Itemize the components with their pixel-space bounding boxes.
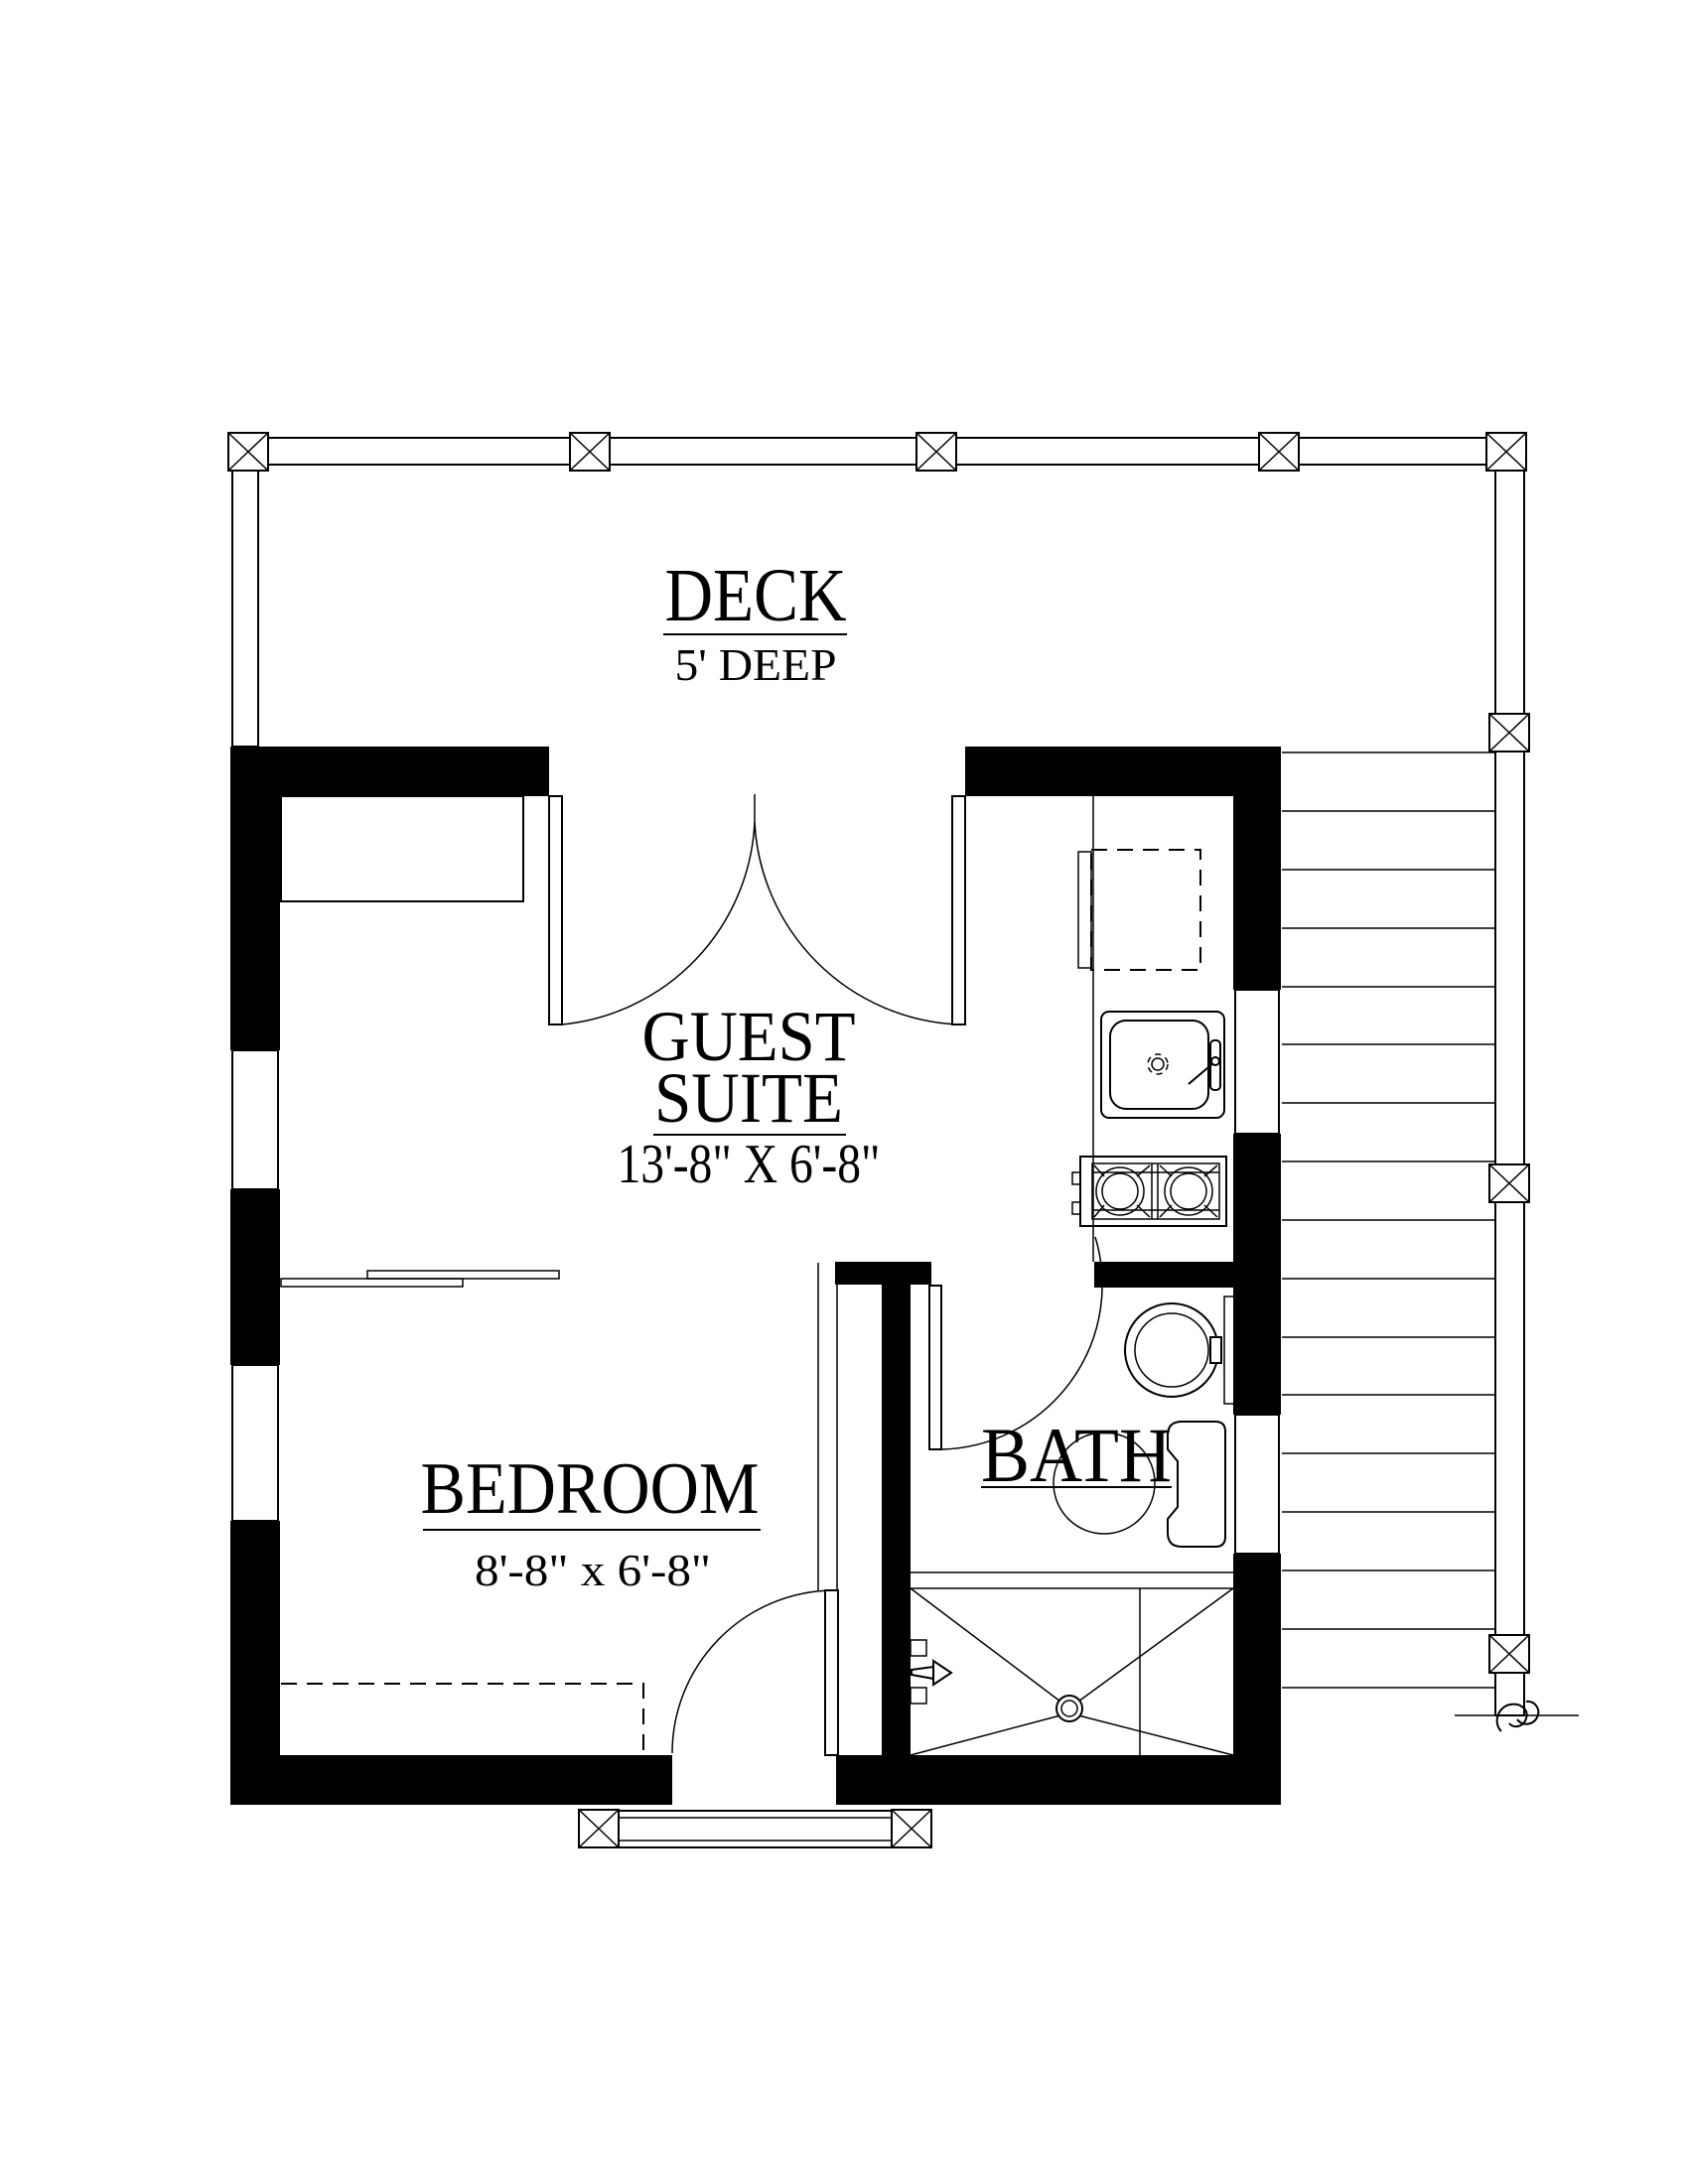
railing-post: [1489, 1635, 1529, 1673]
door-leaf-entry: [825, 1590, 838, 1755]
shower-nozzle: [933, 1661, 951, 1685]
shower-pipe: [912, 1667, 933, 1679]
bath-label: BATH: [981, 1412, 1172, 1498]
kitchen: [1072, 796, 1226, 1262]
bath-vanity: [1168, 1422, 1225, 1547]
railing-post: [579, 1810, 619, 1847]
toilet-bowl: [1125, 1303, 1218, 1397]
wall-segment-left-upper: [230, 747, 280, 1050]
door-swing-arc: [755, 822, 958, 1024]
interior-walls: [818, 1262, 1233, 1755]
deck-dimension: 5' DEEP: [675, 639, 837, 690]
deck-rail-top: [232, 438, 1524, 465]
burner: [1102, 1173, 1138, 1209]
sink-drain-ring: [1148, 1054, 1168, 1074]
refrigerator-side-panel: [1078, 852, 1091, 968]
stairs: [1282, 752, 1495, 1688]
sink-faucet-pivot: [1211, 1057, 1219, 1065]
shower-valve: [911, 1688, 926, 1704]
railing-post: [228, 433, 268, 471]
bedroom-dimension: 8'-8" x 6'-8": [475, 1545, 711, 1595]
door-leaf-bath: [929, 1286, 941, 1449]
railing-post: [1489, 714, 1529, 751]
shower: [911, 1572, 1233, 1755]
shower-head: [911, 1640, 951, 1704]
window-bedroom-left-upper: [232, 1050, 278, 1189]
shower-valve: [911, 1640, 926, 1656]
shower-drain: [1056, 1696, 1082, 1721]
wall-kitchen-bath-divider: [1094, 1262, 1233, 1288]
bed-outline: [281, 1684, 643, 1755]
entry-stoop: [579, 1811, 931, 1847]
entry: [579, 1590, 931, 1847]
railing-post: [1489, 1164, 1529, 1202]
wall-segment-bottom-left: [230, 1755, 672, 1805]
sink-drain: [1152, 1058, 1164, 1070]
french-doors: [549, 794, 965, 1024]
guest-suite-dimension: 13'-8" X 6'-8": [618, 1134, 881, 1195]
floor-plan: DECK 5' DEEP GUEST SUITE 13'-8" X 6'-8" …: [0, 0, 1688, 2184]
stove: [1072, 1157, 1226, 1226]
toilet: [1125, 1297, 1234, 1404]
door-swing-arc: [672, 1590, 832, 1753]
guest-suite-label-line2: SUITE: [654, 1058, 843, 1138]
stove-knob: [1072, 1202, 1080, 1214]
closet: [281, 796, 523, 901]
wall-bath-stub: [835, 1262, 931, 1285]
toilet-tank: [1224, 1297, 1234, 1404]
shower-pan-diagonal: [911, 1715, 1060, 1755]
deck-rail-left: [232, 438, 258, 747]
shelf: [367, 1271, 559, 1279]
shelf: [281, 1279, 463, 1287]
door-swing-arc: [562, 822, 755, 1024]
door-leaf-left: [549, 796, 562, 1024]
toilet-bowl-inner: [1135, 1313, 1208, 1387]
window-bath-right: [1235, 1415, 1279, 1554]
wall-segment-right-middle: [1233, 1134, 1281, 1415]
bedroom-label: BEDROOM: [421, 1448, 760, 1530]
floor-plan-page: DECK 5' DEEP GUEST SUITE 13'-8" X 6'-8" …: [0, 0, 1688, 2184]
railing-post: [916, 433, 956, 471]
shower-pan-diagonal: [1078, 1715, 1233, 1755]
deck-rail-right: [1495, 438, 1524, 1715]
window-bedroom-left-lower: [232, 1365, 278, 1521]
labels: DECK 5' DEEP GUEST SUITE 13'-8" X 6'-8" …: [421, 554, 1173, 1595]
wall-bedroom-bath: [882, 1285, 911, 1755]
shower-pan-diagonal: [1078, 1588, 1233, 1702]
railing-post: [1259, 433, 1299, 471]
refrigerator-outline: [1091, 850, 1200, 970]
burner: [1165, 1167, 1212, 1215]
railing-post: [570, 433, 610, 471]
door-leaf-right: [952, 796, 965, 1024]
kitchen-sink: [1101, 1012, 1224, 1118]
wall-segment-right-upper: [1233, 747, 1281, 990]
railing-post: [892, 1810, 931, 1847]
bathroom: [911, 1297, 1234, 1755]
deck-label: DECK: [665, 554, 847, 637]
burner: [1171, 1173, 1206, 1209]
stove-knob: [1072, 1172, 1080, 1184]
window-kitchen-right: [1235, 990, 1279, 1134]
wall-segment-bottom-right: [836, 1755, 1281, 1805]
wall-segment-left-middle: [230, 1189, 280, 1365]
sink-basin: [1110, 1021, 1208, 1109]
bedroom-furniture: [281, 796, 643, 1755]
railing-post: [1486, 433, 1526, 471]
toilet-flush: [1210, 1337, 1221, 1363]
